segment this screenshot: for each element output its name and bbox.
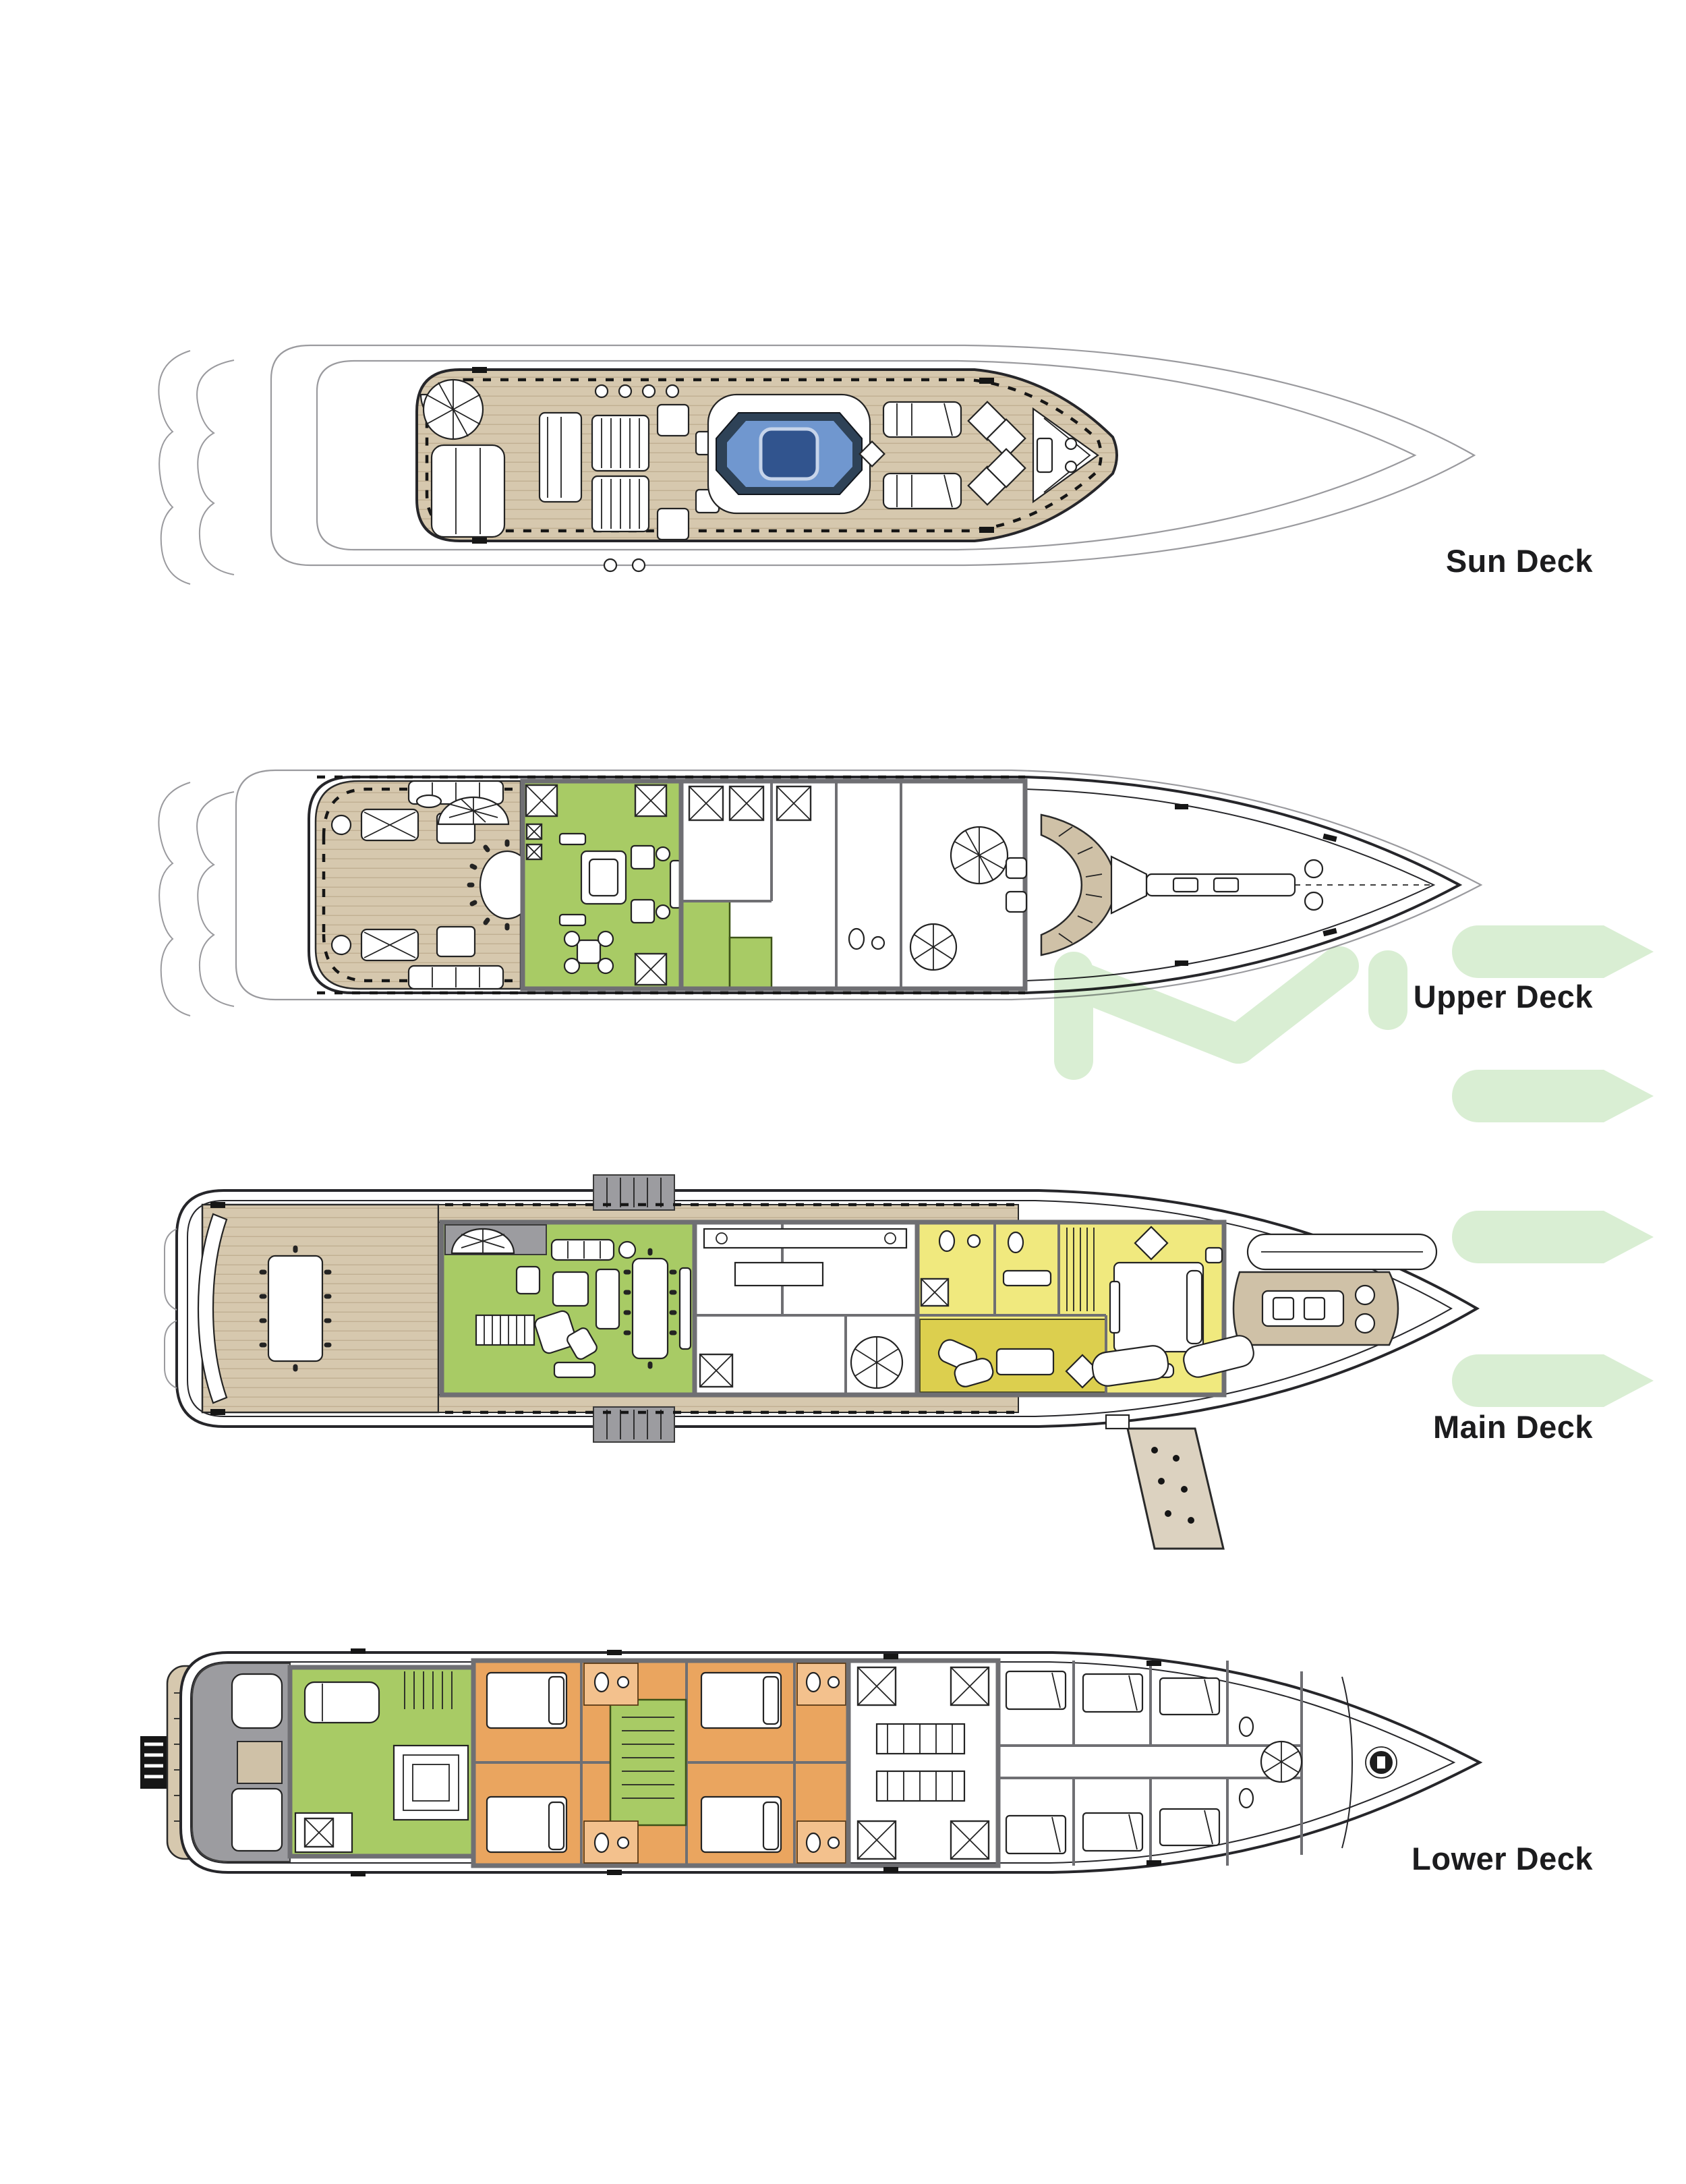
jacuzzi-icon: [708, 395, 870, 513]
deck-label-main-deck: Main Deck: [1121, 1408, 1593, 1445]
deck-label-lower-deck: Lower Deck: [1121, 1840, 1593, 1877]
deck-label-upper-deck: Upper Deck: [1121, 978, 1593, 1015]
owner-suite: [917, 1222, 1224, 1395]
spiral-staircase-icon: [951, 827, 1008, 884]
deck-label-sun-deck: Sun Deck: [1121, 542, 1593, 579]
aft-dining-table: [262, 1248, 329, 1369]
bow-hatch-icon: [1366, 1747, 1397, 1778]
deck-plan-page: Sun Deck Upper Deck Main Deck Lower Deck: [0, 0, 1686, 2184]
spiral-staircase-icon: [910, 924, 956, 970]
guest-cabins: [473, 1661, 848, 1866]
spiral-staircase-icon: [851, 1337, 902, 1388]
main-deck-plan: [165, 1175, 1477, 1549]
spiral-staircase-icon: [1261, 1742, 1302, 1782]
